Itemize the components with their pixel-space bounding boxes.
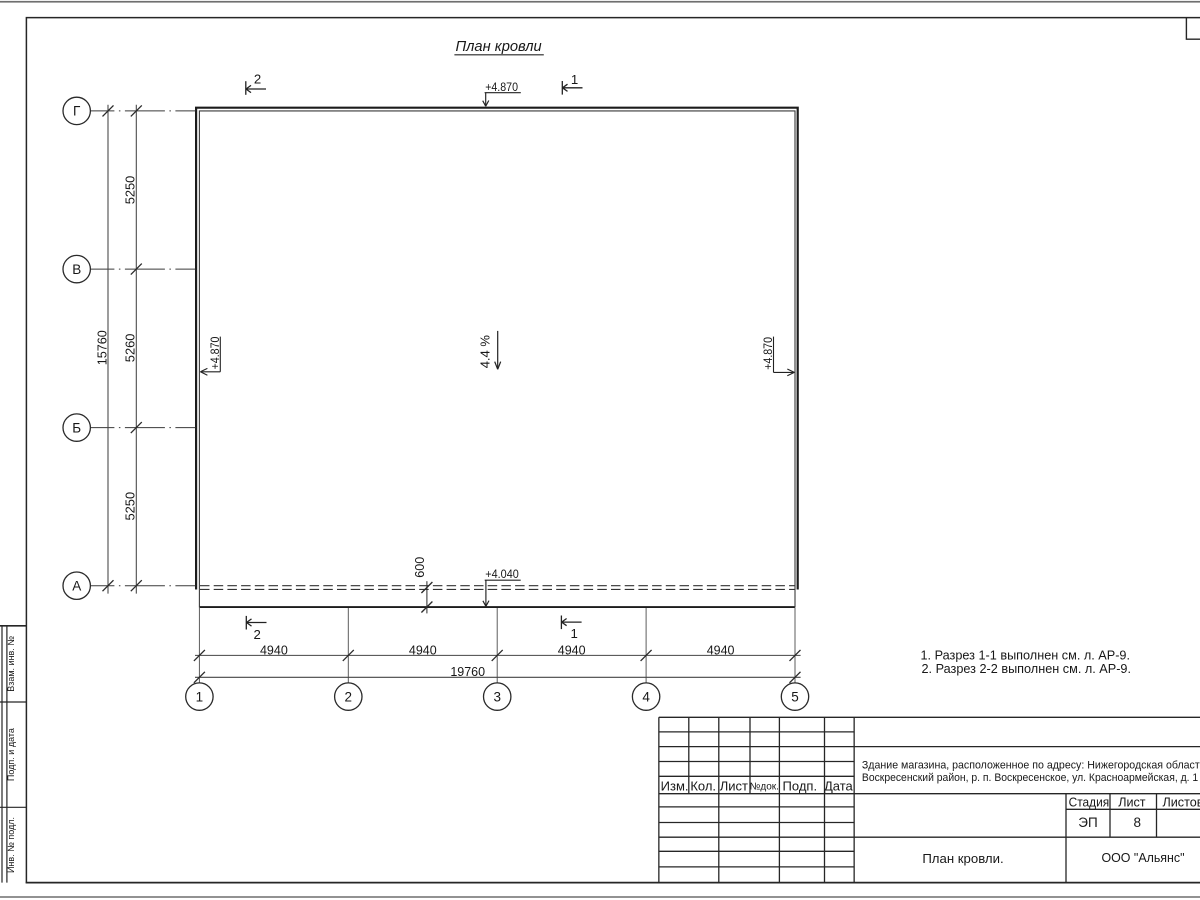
svg-text:5260: 5260 — [123, 334, 138, 363]
svg-text:1: 1 — [196, 689, 204, 704]
svg-text:ООО "Альянс": ООО "Альянс" — [1102, 850, 1185, 865]
svg-text:600: 600 — [412, 557, 427, 578]
svg-text:1: 1 — [571, 72, 578, 87]
svg-text:19760: 19760 — [450, 665, 485, 679]
svg-text:8: 8 — [1134, 815, 1142, 830]
svg-text:Взам. инв. №: Взам. инв. № — [6, 636, 16, 692]
svg-text:5: 5 — [791, 689, 799, 704]
svg-text:А: А — [72, 578, 81, 593]
svg-text:2: 2 — [345, 689, 353, 704]
svg-text:Г: Г — [73, 104, 81, 119]
svg-text:Здание магазина, расположенное: Здание магазина, расположенное по адресу… — [862, 759, 1200, 771]
svg-text:4.4 %: 4.4 % — [478, 335, 493, 369]
svg-text:+4.870: +4.870 — [485, 82, 518, 94]
svg-text:Изм.: Изм. — [661, 779, 689, 794]
svg-text:+4.040: +4.040 — [485, 569, 519, 581]
svg-text:Кол.: Кол. — [690, 779, 716, 794]
svg-text:№док.: №док. — [750, 781, 779, 792]
svg-text:Воскресенский район, р. п. Вос: Воскресенский район, р. п. Воскресенское… — [862, 772, 1198, 784]
svg-text:Лист: Лист — [720, 779, 748, 794]
svg-text:Подп. и дата: Подп. и дата — [6, 728, 16, 781]
svg-text:Лист: Лист — [1118, 795, 1146, 809]
svg-text:15760: 15760 — [95, 330, 110, 365]
svg-text:4940: 4940 — [260, 643, 288, 657]
svg-text:5250: 5250 — [123, 176, 138, 205]
svg-text:2: 2 — [254, 72, 261, 87]
svg-text:План кровли.: План кровли. — [922, 851, 1003, 866]
svg-text:2. Разрез 2-2 выполнен см. л.: 2. Разрез 2-2 выполнен см. л. АР-9. — [922, 662, 1132, 676]
svg-text:Листов: Листов — [1163, 795, 1200, 809]
svg-text:Б: Б — [72, 420, 81, 435]
svg-text:1: 1 — [571, 626, 578, 641]
svg-text:В: В — [72, 262, 81, 277]
svg-text:4940: 4940 — [707, 643, 735, 657]
svg-text:ЭП: ЭП — [1078, 815, 1097, 830]
svg-text:4: 4 — [642, 689, 650, 704]
svg-text:Подп.: Подп. — [783, 779, 818, 794]
svg-text:4940: 4940 — [558, 643, 586, 657]
svg-text:Инв. № подл.: Инв. № подл. — [6, 817, 16, 873]
svg-text:4940: 4940 — [409, 643, 437, 657]
svg-text:3: 3 — [493, 689, 501, 704]
svg-text:Дата: Дата — [824, 779, 854, 794]
svg-text:План кровли: План кровли — [456, 39, 542, 55]
svg-text:5250: 5250 — [123, 492, 138, 521]
svg-text:1. Разрез 1-1 выполнен см. л.: 1. Разрез 1-1 выполнен см. л. АР-9. — [921, 648, 1131, 662]
svg-text:Стадия: Стадия — [1069, 795, 1110, 809]
svg-text:2: 2 — [254, 627, 261, 642]
